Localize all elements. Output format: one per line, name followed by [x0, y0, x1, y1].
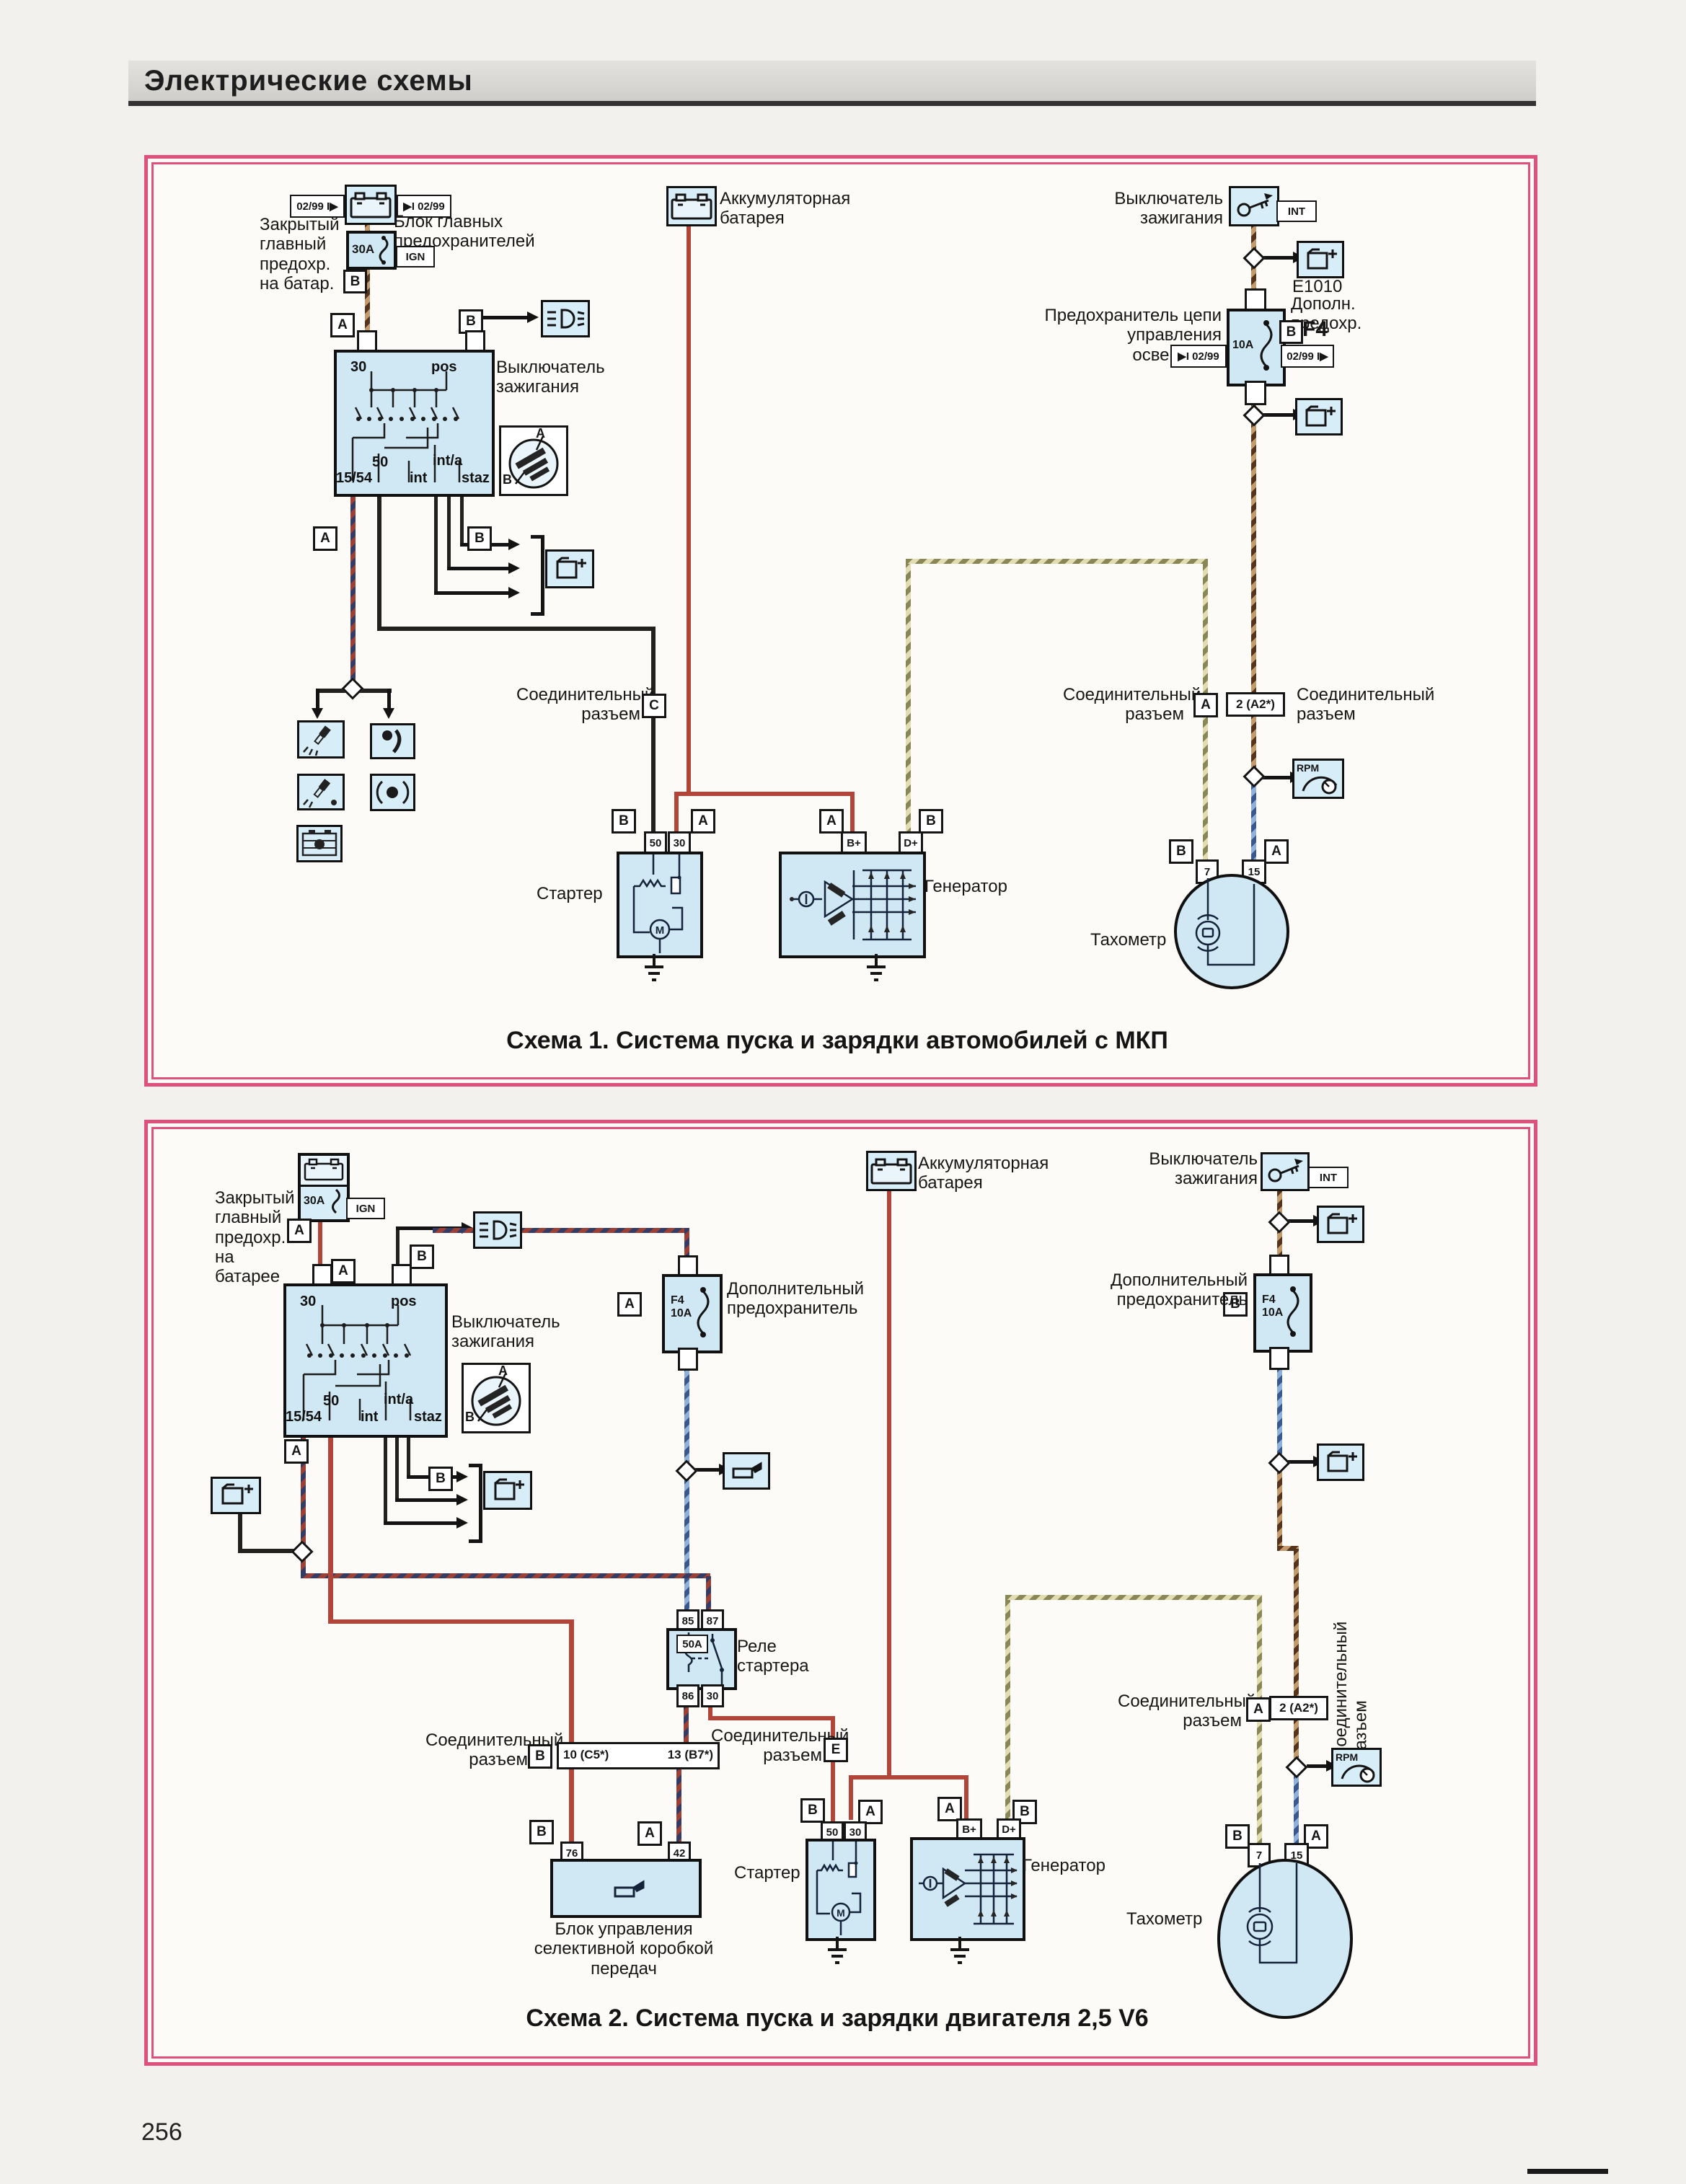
arrow: [694, 1468, 720, 1472]
wire: [328, 1619, 574, 1624]
connector-letter: A: [287, 1219, 312, 1243]
wire: [1251, 712, 1256, 770]
connector-letter: B: [343, 270, 367, 293]
connector-label: Соединительный разъем: [711, 1726, 822, 1766]
connector-bar: 10 (C5*) 13 (B7*): [557, 1742, 720, 1769]
connector-label: Соединительный разъем: [425, 1730, 528, 1770]
ignition-key-icon: [1229, 186, 1279, 226]
switch-terminal: 15/54: [286, 1409, 322, 1425]
ground-symbol: [826, 1937, 848, 1967]
light-control-fuse: 10A: [1227, 309, 1286, 386]
switch-terminal: int/a: [384, 1392, 413, 1408]
headlight-icon: [473, 1211, 522, 1249]
battery-label: Аккумуляторная батарея: [918, 1154, 1098, 1193]
connector-label: Соединительный разъем: [516, 685, 640, 725]
switch-terminal: 30: [350, 359, 366, 376]
additional-fuse: F4 10A: [1253, 1273, 1312, 1353]
wire-battery-feed: [887, 1188, 891, 1778]
connector-letter: B: [1279, 320, 1303, 344]
wire: [1294, 1772, 1299, 1844]
battery-plus-icon: [211, 1477, 261, 1514]
connector-letter: A: [1246, 1697, 1271, 1722]
connector-letter: A: [330, 313, 355, 337]
wire: [1277, 1366, 1282, 1458]
wire: [684, 1477, 689, 1611]
bracket: [531, 535, 544, 616]
fuse-rating: 30A: [352, 242, 374, 257]
ground-symbol: [643, 954, 665, 984]
wire: [906, 561, 911, 834]
date-tag: 02/99 I▶: [1281, 345, 1334, 368]
switch-terminal: int: [410, 470, 427, 487]
tachometer-block: [1217, 1859, 1353, 2019]
wire: [1277, 1468, 1282, 1549]
connector-letter: B: [800, 1798, 825, 1823]
wire: [384, 1433, 387, 1521]
relay-rating: 50A: [676, 1635, 708, 1653]
wire: [377, 627, 656, 631]
spark-plug-icon: [297, 774, 345, 810]
fuse-rating: 30A: [304, 1195, 325, 1208]
gearbox-control-label: Блок управления селективной коробкой пер…: [505, 1919, 743, 1979]
tachometer-label: Тахометр: [1126, 1909, 1213, 1929]
switch-terminal: pos: [391, 1294, 417, 1310]
ignition-switch-label: Выключатель зажигания: [1148, 1149, 1258, 1189]
wire: [447, 491, 451, 568]
connector-letter: B: [410, 1244, 434, 1269]
wire: [1005, 1595, 1262, 1600]
connector-letter: A: [637, 1821, 662, 1846]
wire: [674, 792, 855, 796]
closed-main-fuse-label: Закрытый главный предохр. на батар.: [260, 215, 346, 293]
page-number: 256: [141, 2118, 182, 2147]
battery-icon: [345, 185, 397, 225]
connector-label-vertical: Соединительный разъем: [1331, 1615, 1376, 1759]
connector-id: 2 (A2*): [1269, 1696, 1328, 1720]
battery-plus-icon: [483, 1471, 532, 1510]
wire: [831, 1758, 835, 1821]
connector-letter: B: [919, 809, 943, 834]
generator-label: Генератор: [924, 877, 1033, 896]
wire-battery-feed: [687, 222, 691, 795]
wire: [684, 1228, 689, 1257]
starter-label: Стартер: [734, 1863, 802, 1883]
key-pos-b: B: [503, 472, 512, 487]
ignition-switch-label: Выключатель зажигания: [1113, 189, 1223, 229]
battery-plus-icon: [1297, 241, 1344, 278]
wire: [849, 1775, 968, 1780]
connector-letter: E: [824, 1738, 848, 1762]
abs-icon: [370, 774, 415, 811]
fusebox-icon: [296, 825, 343, 862]
starter-label: Стартер: [537, 884, 609, 903]
ground-symbol: [865, 954, 887, 984]
starter-block: M: [617, 852, 703, 958]
wire: [569, 1619, 574, 1743]
motor-letter: M: [837, 1907, 845, 1919]
wire: [350, 491, 356, 684]
battery-label: Аккумуляторная батарея: [720, 189, 893, 229]
connector-letter: B: [1169, 839, 1193, 864]
arrow: [1262, 413, 1294, 417]
relay-terminal: 86: [676, 1684, 699, 1707]
fuse-rating: 10A: [1232, 339, 1253, 352]
connector-letter: A: [937, 1797, 962, 1821]
arrow: [434, 591, 509, 595]
wire: [1005, 1600, 1010, 1820]
wire: [396, 1226, 400, 1265]
wire: [238, 1549, 296, 1553]
wire: [328, 1433, 333, 1624]
arrow: [384, 1521, 457, 1525]
wire: [651, 627, 656, 834]
connector-letter: A: [284, 1439, 309, 1464]
arrow: [1288, 1460, 1314, 1464]
diagram2-caption: Схема 2. Система пуска и зарядки двигате…: [231, 2004, 1444, 2033]
wire: [238, 1510, 242, 1552]
switch-terminal: staz: [414, 1409, 442, 1425]
wire: [433, 1228, 689, 1233]
generator-block: [779, 852, 926, 958]
arrow: [1262, 776, 1291, 779]
wire: [460, 491, 464, 544]
switch-terminal: 50: [323, 1393, 339, 1410]
switch-terminal: 50: [372, 454, 388, 471]
battery-plus-icon: [1317, 1206, 1364, 1243]
arrow: [395, 1498, 457, 1502]
additional-fuse: F4 10A: [662, 1274, 723, 1353]
arrow: [1307, 1764, 1327, 1768]
ign-tag: IGN: [396, 246, 435, 268]
rpm-gauge-icon: RPM: [1292, 759, 1344, 799]
connector-letter: B: [428, 1467, 453, 1491]
connector-letter: A: [819, 809, 844, 834]
arrow-down: [316, 689, 319, 709]
starter-block: M: [806, 1839, 876, 1941]
wire: [377, 491, 381, 629]
battery-main-fuse: 30A: [298, 1153, 350, 1222]
battery-icon: [666, 186, 717, 226]
ign-tag: IGN: [346, 1198, 385, 1219]
wire: [1257, 1600, 1262, 1844]
wire: [1294, 1717, 1299, 1761]
switch-terminal: 30: [300, 1294, 316, 1310]
wire: [706, 1576, 711, 1611]
key-position-diagram: A B: [499, 425, 568, 496]
terminal-stub: [1245, 381, 1266, 405]
wire: [1251, 421, 1256, 694]
connector-id: 2 (A2*): [1226, 692, 1285, 717]
connector-pin: 10 (C5*): [563, 1748, 609, 1762]
terminal-stub: [678, 1348, 698, 1371]
connector-letter: B: [467, 526, 492, 551]
wire: [395, 1433, 399, 1498]
battery-icon: [301, 1156, 347, 1187]
wire: [849, 1780, 853, 1820]
wire: [434, 491, 438, 593]
wire: [684, 1703, 689, 1743]
switch-terminal: staz: [462, 470, 490, 487]
gearbox-control-block: [550, 1859, 702, 1918]
key-pos-a: A: [536, 426, 545, 441]
headlight-icon: [541, 300, 590, 337]
switch-terminal: 15/54: [336, 470, 372, 487]
connector-letter: A: [617, 1292, 642, 1317]
battery-plus-icon: [1295, 398, 1343, 436]
wire: [318, 1215, 322, 1265]
ground-symbol: [949, 1937, 971, 1967]
wire: [708, 1716, 835, 1720]
battery-plus-icon: [545, 549, 594, 588]
additional-fuse-label: Дополнительный предохранитель: [1111, 1270, 1248, 1310]
connector-label: Соединительный разъем: [1118, 1692, 1242, 1731]
connector-letter: A: [858, 1800, 883, 1824]
wire: [676, 1765, 681, 1843]
connector-letter: C: [642, 694, 666, 718]
wire: [407, 1433, 410, 1475]
terminal-stub: [1269, 1347, 1289, 1370]
fuse-glyph: [375, 235, 392, 265]
connector-letter: B: [529, 1820, 554, 1844]
connector-letter: A: [331, 1259, 356, 1283]
wire: [1251, 783, 1256, 861]
connector-pin: 13 (B7*): [668, 1748, 713, 1762]
arrow: [1288, 1219, 1314, 1223]
starter-relay: 50A: [666, 1628, 737, 1690]
connector-letter: B: [528, 1744, 552, 1769]
arrow: [447, 567, 509, 570]
diagram1-caption: Схема 1. Система пуска и зарядки автомоб…: [231, 1027, 1444, 1055]
wire: [674, 796, 679, 834]
wire: [301, 1573, 710, 1578]
ignition-switch-label: Выключатель зажигания: [496, 358, 619, 397]
connector-letter: B: [1225, 1824, 1250, 1849]
wire: [850, 796, 855, 834]
connector-letter: A: [1264, 839, 1289, 864]
key-position-diagram: A B: [462, 1363, 531, 1433]
motor-letter: M: [656, 924, 665, 937]
spark-plug-icon: [297, 720, 345, 759]
battery-icon: [866, 1151, 917, 1191]
switch-terminal: int/a: [433, 453, 462, 469]
rpm-gauge-icon: RPM: [1331, 1748, 1382, 1787]
int-tag: INT: [1276, 200, 1317, 222]
arrow: [1262, 256, 1294, 260]
tachometer-label: Тахометр: [1090, 930, 1173, 950]
switch-terminal: int: [361, 1409, 378, 1425]
connector-letter: B: [612, 809, 636, 834]
int-tag: INT: [1308, 1167, 1349, 1188]
switch-terminal: pos: [431, 359, 457, 376]
wire: [906, 559, 1208, 564]
connector-label: Соединительный разъем: [1063, 685, 1184, 725]
connector-letter: A: [313, 526, 337, 551]
key-pos-a: A: [498, 1363, 508, 1379]
tachometer-block: [1174, 874, 1289, 989]
ignition-switch-label: Выключатель зажигания: [451, 1312, 574, 1352]
bracket: [469, 1464, 482, 1543]
page-title: Электрические схемы: [128, 61, 1536, 101]
additional-fuse-label: Дополнительный предохранитель: [727, 1279, 929, 1319]
fuse-30a: 30A: [346, 231, 397, 270]
wire: [684, 1365, 689, 1466]
airbag-icon: [370, 723, 415, 759]
starter-relay-label: Реле стартера: [737, 1637, 852, 1676]
connector-label: Соединительный разъем: [1297, 685, 1448, 725]
footer-rule: [1527, 2169, 1608, 2174]
relay-terminal: 30: [701, 1684, 724, 1707]
fuse-id: F4: [1302, 317, 1346, 342]
generator-label: Генератор: [1023, 1856, 1131, 1875]
arrow-down: [387, 689, 391, 709]
connector-letter: A: [691, 809, 715, 834]
manual-page: Электрические схемы 02/99 I▶ ▶I 02/99: [0, 0, 1686, 2184]
wire: [1294, 1549, 1299, 1697]
wire: [964, 1780, 968, 1818]
key-pos-b: B: [465, 1410, 475, 1425]
page-header: Электрические схемы: [128, 61, 1536, 106]
wire: [569, 1765, 574, 1843]
date-tag: ▶I 02/99: [1170, 345, 1227, 368]
module-icon: [723, 1452, 770, 1490]
battery-plus-icon: [1317, 1444, 1364, 1481]
generator-block: [910, 1837, 1025, 1941]
connector-letter: A: [1193, 693, 1218, 717]
ignition-key-icon: [1261, 1152, 1310, 1191]
